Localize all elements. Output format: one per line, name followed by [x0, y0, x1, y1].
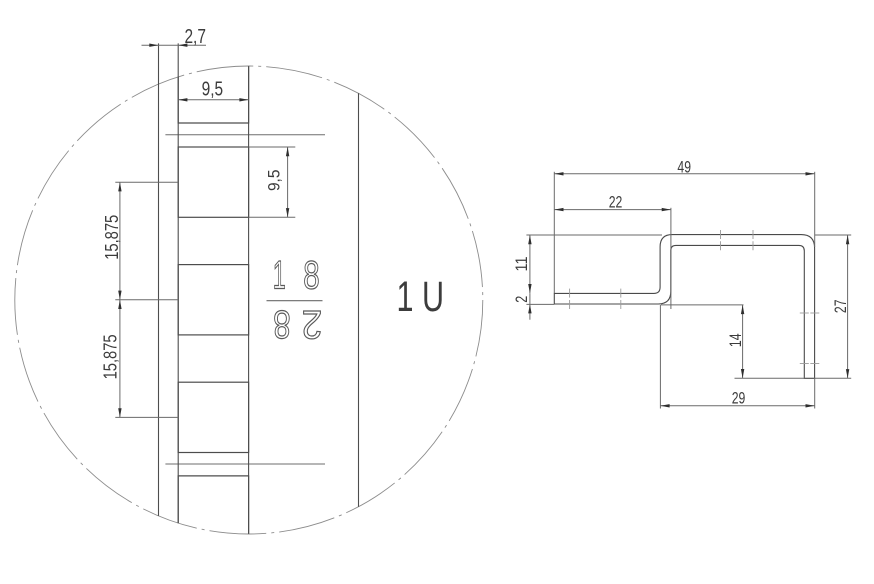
- svg-text:8: 8: [303, 253, 319, 297]
- svg-text:49: 49: [677, 158, 691, 176]
- svg-text:22: 22: [609, 193, 623, 211]
- svg-text:2,7: 2,7: [184, 26, 206, 48]
- svg-text:2: 2: [302, 302, 323, 346]
- svg-text:1 U: 1 U: [397, 273, 445, 321]
- svg-text:8: 8: [273, 302, 290, 346]
- svg-text:15,875: 15,875: [101, 334, 121, 379]
- svg-text:9,5: 9,5: [202, 79, 224, 101]
- svg-text:9,5: 9,5: [265, 170, 284, 192]
- svg-text:15,875: 15,875: [102, 215, 122, 260]
- svg-text:14: 14: [727, 334, 745, 348]
- svg-text:27: 27: [832, 300, 850, 314]
- svg-text:1: 1: [273, 253, 286, 297]
- svg-text:11: 11: [513, 257, 531, 272]
- svg-text:2: 2: [513, 296, 531, 303]
- svg-text:29: 29: [732, 389, 746, 407]
